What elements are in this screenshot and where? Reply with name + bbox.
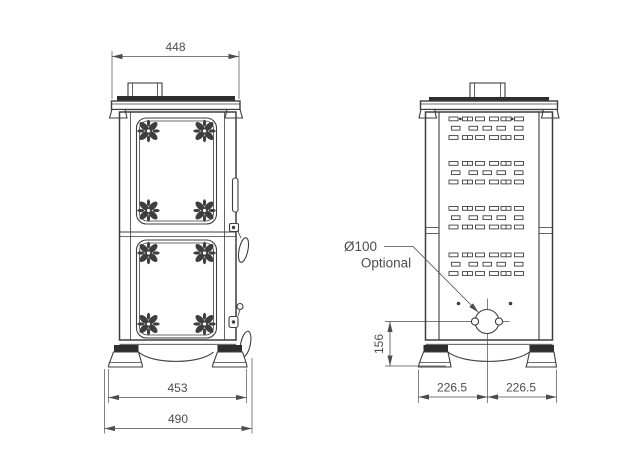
rear-body xyxy=(426,112,553,340)
dim-feet-width: 453 xyxy=(109,369,247,403)
front-top-plate xyxy=(110,96,243,118)
dim-top-width-label: 448 xyxy=(165,40,185,54)
annotation-note-label: Optional xyxy=(361,256,411,271)
drawing-canvas: 448 453 490 xyxy=(0,0,624,460)
dim-left-half-label: 226.5 xyxy=(437,381,467,395)
dim-overall-width-label: 490 xyxy=(168,412,188,426)
dim-overall-width: 490 xyxy=(105,358,253,434)
dim-feet-width-label: 453 xyxy=(167,381,187,395)
annotation-diameter-label: Ø100 xyxy=(344,239,377,254)
front-door-handles xyxy=(229,178,253,358)
front-lower-door-panel xyxy=(137,240,217,338)
dim-outlet-height-label: 156 xyxy=(372,334,386,354)
rear-view: Ø100 Optional 156 226.5 226.5 xyxy=(344,83,559,403)
front-base xyxy=(109,340,248,367)
stove-technical-drawing: 448 453 490 xyxy=(0,0,624,460)
front-view: 448 453 490 xyxy=(105,40,253,434)
rear-vent-slots xyxy=(449,117,524,275)
front-upper-door-panel xyxy=(137,118,217,224)
dim-right-half-label: 226.5 xyxy=(506,381,536,395)
rear-top-plate xyxy=(419,97,559,118)
